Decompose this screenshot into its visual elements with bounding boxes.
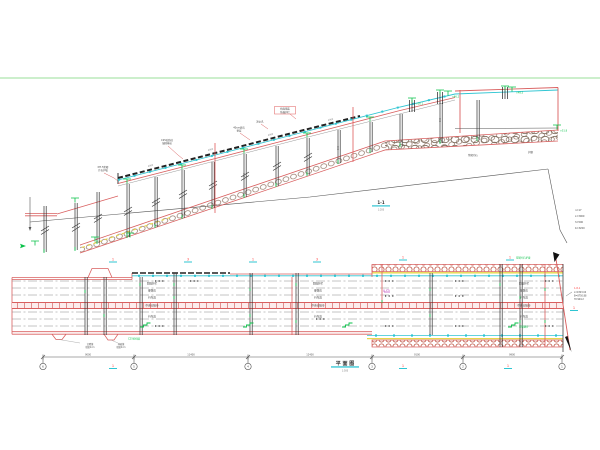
dim-text: 500 xyxy=(242,173,245,178)
green-note: C25砼挡墙 xyxy=(128,337,140,341)
row-label: 中央分隔带 xyxy=(312,303,325,307)
section-title: 1-1 xyxy=(377,200,384,205)
axis-number: 3 xyxy=(316,258,318,262)
dim-value: 12400 xyxy=(306,354,314,357)
riprap-label: 护脚 xyxy=(528,150,533,154)
axis-number: 3 xyxy=(187,258,189,262)
plan-title-text: 平 面 图 xyxy=(336,360,354,367)
row-label: 行车道 xyxy=(520,295,528,299)
row-label: 行车道 xyxy=(520,314,528,318)
section-number: 1 xyxy=(402,364,404,368)
axis-number: 1 xyxy=(509,256,511,260)
axis-bubble: 4 xyxy=(247,365,249,369)
row-label: 防撞护栏 xyxy=(519,281,530,285)
riprap-label: 浆砌片石 xyxy=(468,153,478,157)
axis-bubble: 3 xyxy=(371,365,373,369)
plan-title-scale: 1:500 xyxy=(342,370,349,373)
level-label: ▽50.1 xyxy=(416,103,424,106)
callout-text: 垫层 xyxy=(237,129,242,133)
background xyxy=(0,0,600,450)
stone-band-label: 浆砌片石护坡 xyxy=(516,256,531,260)
level-label: ▽51.8 xyxy=(560,130,568,133)
note-line: L=3000 xyxy=(575,215,585,218)
axis-bubble: 2 xyxy=(462,365,464,369)
callout-text: 泄水孔 xyxy=(256,120,264,124)
dim-text: 500 xyxy=(153,200,156,205)
callout-text: 片石护坡 xyxy=(98,168,108,172)
axis-bubble: 5 xyxy=(133,365,135,369)
cad-drawing-canvas: M7.5浆砌 片石护坡 C25砼肋柱 锚固基岩 40cm碎石 垫层 泄水孔 桥面… xyxy=(0,0,600,450)
row-label: 行车道 xyxy=(314,295,322,299)
dim-value: 11400 xyxy=(187,354,195,357)
note-line: b=3200 xyxy=(575,227,585,230)
section-number: 1 xyxy=(573,306,575,310)
drawing-svg: M7.5浆砌 片石护坡 C25砼肋柱 锚固基岩 40cm碎石 垫层 泄水孔 桥面… xyxy=(0,0,600,450)
level-label: ▽46.2 xyxy=(452,96,460,99)
axis-bubble: 1 xyxy=(561,365,563,369)
axis-number: 1 xyxy=(112,258,114,262)
axis-bubble: 6 xyxy=(42,365,44,369)
level-label: ▽48.5 xyxy=(516,92,524,95)
stone-band-bottom xyxy=(372,340,563,347)
dim-value: 9000 xyxy=(85,354,92,357)
callout-text: 锚固基岩 xyxy=(162,141,172,145)
row-label: 行车道 xyxy=(148,295,156,299)
row-label: 硬路肩 xyxy=(314,288,322,292)
row-label: 中央分隔带 xyxy=(146,303,159,307)
row-label: 防撞护栏 xyxy=(147,281,158,285)
row-label: 行车道 xyxy=(148,314,156,318)
dim-value: 9900 xyxy=(509,354,516,357)
section-number: 1 xyxy=(112,364,114,368)
axis-number: 1 xyxy=(402,256,404,260)
section-number: 1 xyxy=(507,364,509,368)
stairs-label: 浆砌踏步 xyxy=(519,325,529,329)
row-label: 中央分隔带 xyxy=(518,303,531,307)
note-line: n=17 xyxy=(575,209,582,212)
note-line: h=500 xyxy=(575,221,584,224)
axis-number: 1 xyxy=(252,258,254,262)
median-ladder-strip xyxy=(12,303,563,309)
dim-text: 500 xyxy=(438,118,441,123)
section-scale: 1:200 xyxy=(378,209,385,212)
joint-note: 缝宽4cm xyxy=(116,345,125,349)
row-label: 硬路肩 xyxy=(520,288,528,292)
joint-note: 缝宽2cm xyxy=(85,345,94,349)
row-label: 硬路肩 xyxy=(148,288,156,292)
row-label: 防撞护栏 xyxy=(313,281,324,285)
stone-band-top xyxy=(372,265,563,272)
dim-text: 500 xyxy=(95,216,98,221)
note-line: 1-8-1 xyxy=(574,287,581,290)
note-line: H=904.2 xyxy=(574,298,584,301)
callout-text: 防撞护栏 xyxy=(280,110,290,114)
dim-text: 500 xyxy=(336,146,339,151)
row-label: 行车道 xyxy=(314,314,322,318)
dim-value: 9100 xyxy=(414,354,421,357)
